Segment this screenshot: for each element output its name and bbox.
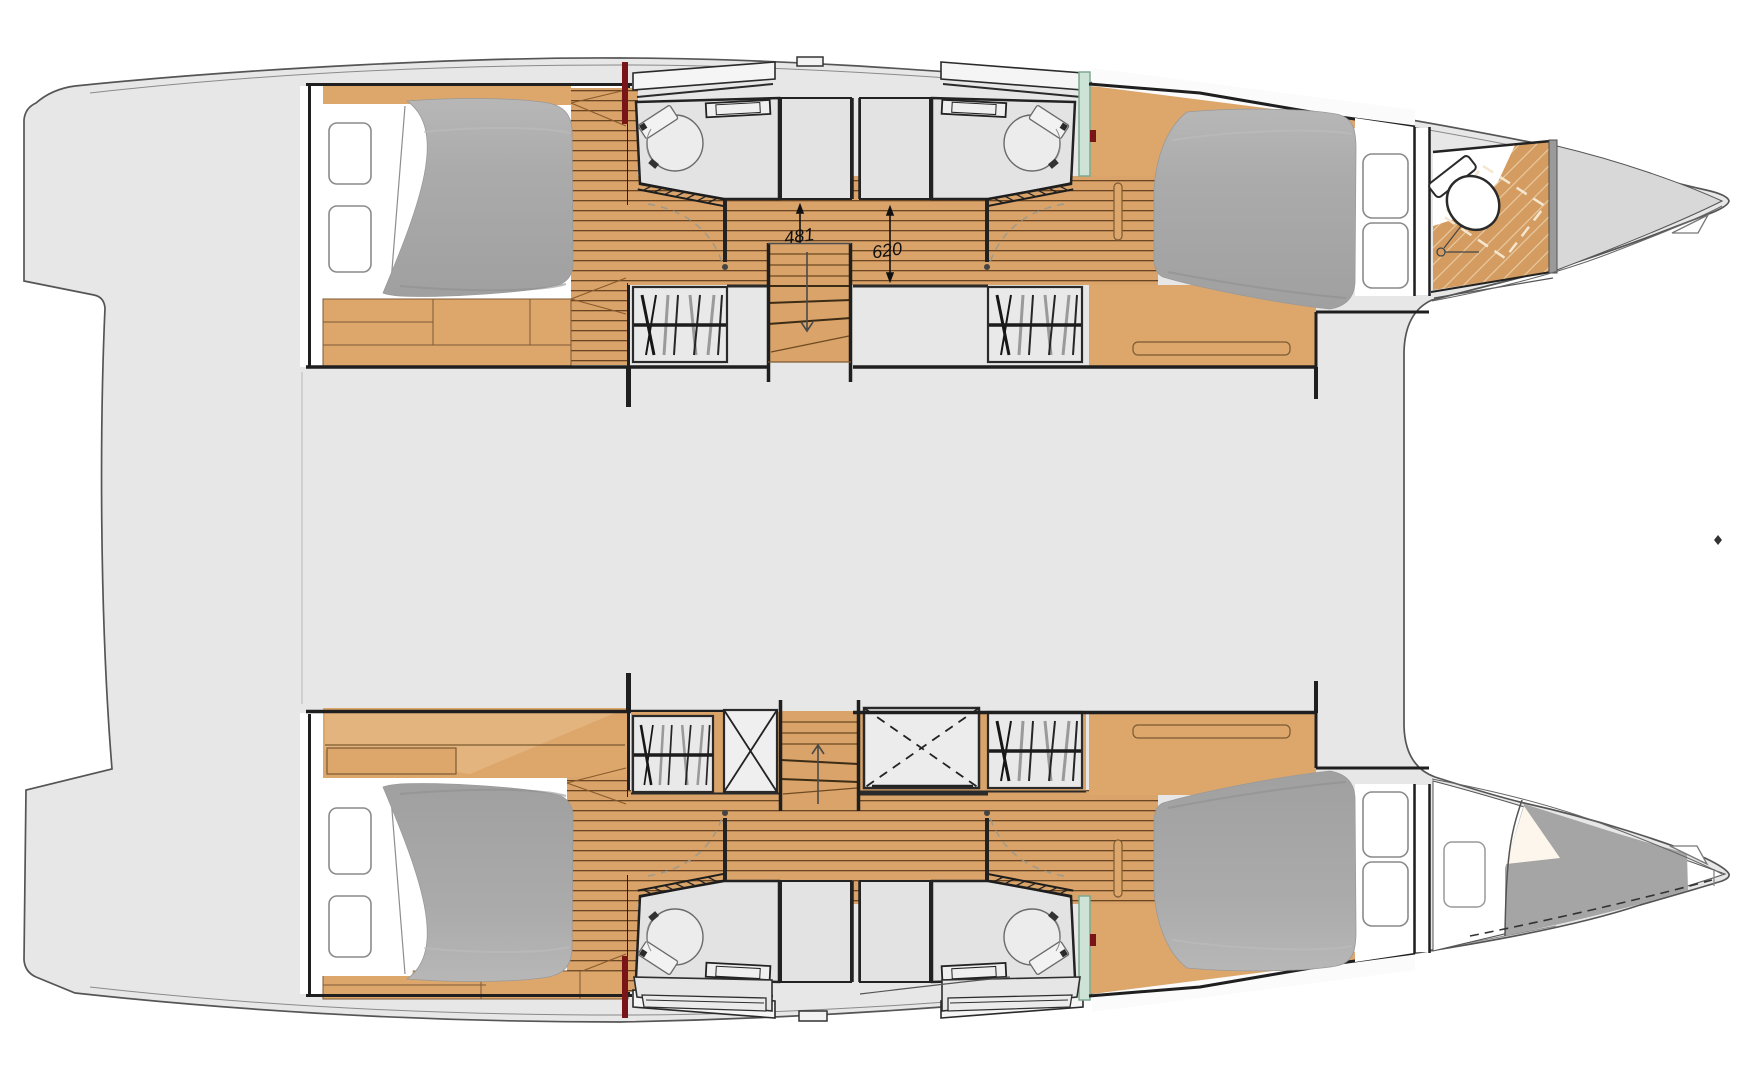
svg-text:620: 620: [871, 238, 904, 262]
